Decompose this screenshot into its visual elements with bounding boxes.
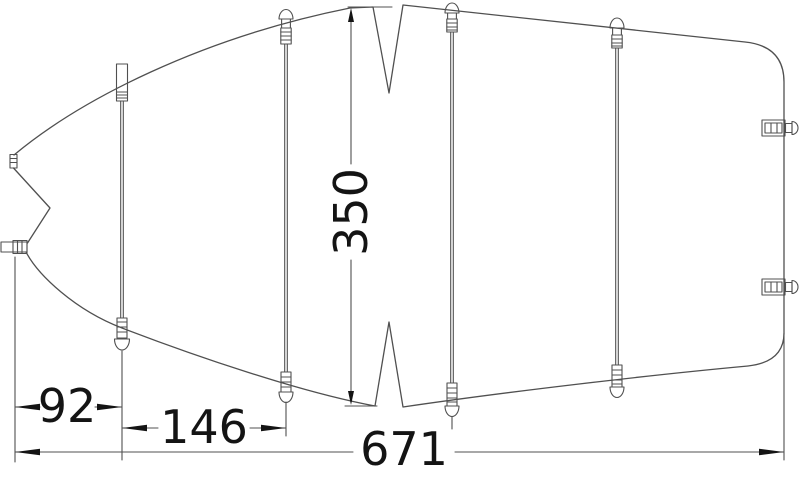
buckle-neck (786, 124, 793, 133)
pole-ball-end (445, 406, 459, 417)
buckle-bars (771, 282, 777, 292)
arrow-right (261, 425, 286, 431)
dimension-label-350: 350 (324, 168, 378, 256)
stern-strap-buckle-upper (762, 120, 798, 136)
arrow-left (15, 449, 40, 455)
arrow-up (348, 8, 354, 22)
dimension-671: 671 (15, 422, 784, 476)
arrow-down (348, 391, 354, 405)
dimension-label-146: 146 (160, 400, 248, 454)
buckle-neck (786, 283, 793, 292)
pole-bottom-sleeve-ribs (117, 322, 127, 332)
pole-ball-end (115, 339, 130, 350)
buckle-bars (771, 123, 777, 133)
support-pole-4 (610, 18, 624, 398)
support-pole-2 (279, 10, 293, 403)
pole-ball-end (610, 387, 624, 398)
pole-cap (445, 3, 459, 13)
dimension-146: 146 (122, 400, 286, 454)
buckle-cap (792, 122, 798, 135)
arrow-left (122, 425, 147, 431)
buckle-cap (792, 281, 798, 294)
dimension-label-671: 671 (360, 422, 448, 476)
cover-outline (14, 5, 784, 407)
bow-strap-buckle (1, 241, 27, 254)
arrow-left (15, 404, 40, 410)
pole-top-sleeve-ribs (612, 39, 622, 46)
buckle-body (1, 242, 27, 252)
pole-bottom-sleeve-ribs (612, 370, 622, 384)
support-pole-3 (445, 3, 459, 429)
dimension-label-92: 92 (38, 379, 97, 433)
pole-top-sleeve-ribs (281, 32, 291, 40)
stern-strap-buckle-lower (762, 279, 798, 295)
arrow-right (759, 449, 784, 455)
pole-top-sleeve (117, 92, 128, 101)
pole-shaft (451, 32, 454, 383)
support-pole-1 (115, 64, 130, 350)
dimension-350: 350 (324, 7, 392, 406)
dimension-92: 92 (15, 379, 122, 433)
pole-neck (448, 13, 457, 19)
buckle-inner (765, 282, 782, 292)
drawing-root: 350 92 146 671 (1, 3, 798, 476)
bow-notch-outline (14, 168, 51, 243)
pole-top-sleeve-ribs (117, 95, 128, 98)
pole-shaft (616, 48, 619, 365)
pole-cap (610, 18, 624, 28)
pole-shaft (285, 44, 288, 372)
boat-cover-dimension-drawing: 350 92 146 671 (0, 0, 800, 480)
buckle-inner (765, 123, 782, 133)
drawing-canvas: 350 92 146 671 (0, 0, 800, 480)
pole-shaft (121, 101, 124, 318)
dimensions: 350 92 146 671 (15, 7, 784, 476)
clip-ribs (10, 159, 17, 163)
arrow-right (97, 404, 122, 410)
pole-top-sleeve-ribs (447, 23, 457, 30)
pole-ball-end (279, 392, 293, 403)
pole-cap (279, 10, 293, 20)
bow-clip-fitting (10, 155, 17, 169)
clip-body (10, 155, 17, 169)
